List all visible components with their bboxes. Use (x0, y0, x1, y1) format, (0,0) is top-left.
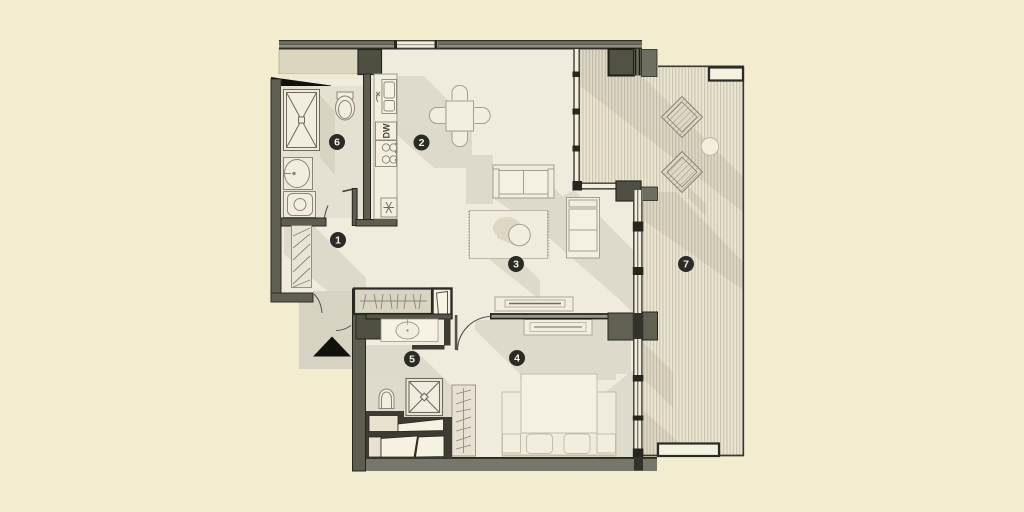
svg-text:5: 5 (409, 353, 415, 365)
svg-text:1: 1 (335, 234, 341, 246)
svg-text:7: 7 (683, 258, 689, 270)
svg-text:6: 6 (334, 136, 340, 148)
svg-text:3: 3 (513, 258, 519, 270)
svg-text:DW: DW (382, 123, 392, 138)
svg-text:2: 2 (419, 137, 425, 149)
svg-text:4: 4 (514, 352, 520, 364)
